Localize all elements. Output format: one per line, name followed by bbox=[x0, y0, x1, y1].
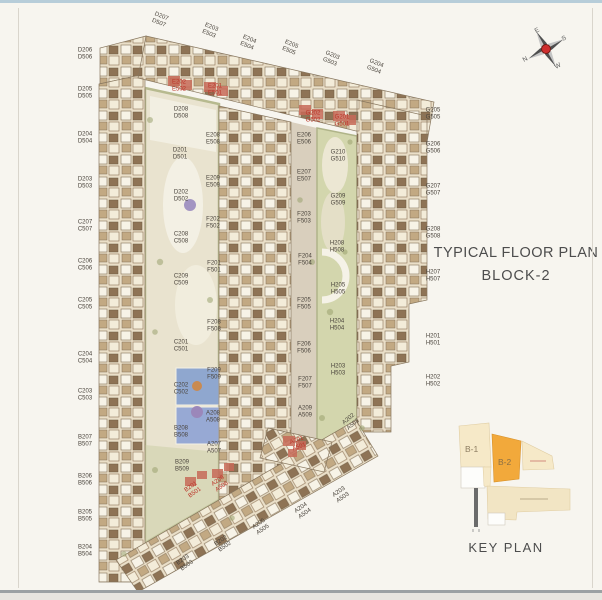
compass-e-label: E bbox=[534, 26, 542, 35]
compass-s-label: S bbox=[561, 34, 569, 43]
key-plan-title: KEY PLAN bbox=[443, 540, 569, 555]
compass-icon: E S W N bbox=[519, 22, 573, 76]
drawing-title: TYPICAL FLOOR PLAN BLOCK-2 bbox=[430, 245, 602, 284]
key-plan-b1-label: B-1 bbox=[465, 444, 479, 454]
compass-n-label: N bbox=[522, 55, 530, 64]
floor-plan-graphic: E S W N B-1 B-2 bbox=[0, 0, 602, 600]
key-plan: B-1 B-2 bbox=[459, 423, 570, 532]
title-line-1: TYPICAL FLOOR PLAN bbox=[430, 245, 602, 261]
title-line-2: BLOCK-2 bbox=[430, 268, 602, 284]
floor-plan-canvas: E S W N B-1 B-2 D206D506D205D505D204D504… bbox=[0, 0, 602, 600]
key-plan-b2-label: B-2 bbox=[498, 457, 512, 467]
compass-w-label: W bbox=[554, 61, 564, 71]
